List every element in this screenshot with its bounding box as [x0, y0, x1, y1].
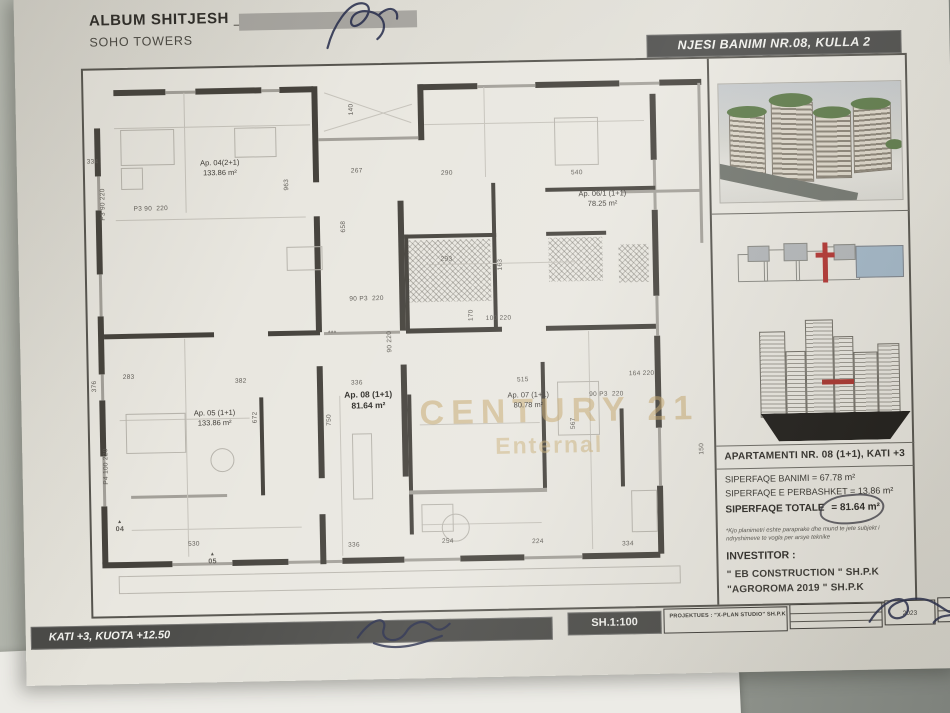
wall — [342, 557, 404, 564]
wall — [406, 327, 502, 334]
site-block — [783, 243, 807, 261]
wall — [319, 514, 326, 564]
disclaimer-note: *Kjo planimetri eshte paraprake dhe mund… — [726, 525, 906, 544]
apartment-label: Ap. 05 (1+1)133.86 m² — [171, 407, 257, 428]
year-box: 2023 — [884, 599, 935, 625]
window — [658, 428, 662, 486]
investor-company-1: " EB CONSTRUCTION " SH.P.K — [727, 567, 879, 581]
dimension-label: *** — [328, 330, 337, 337]
dimension-label: 100 220 — [486, 315, 512, 323]
wall — [546, 231, 606, 236]
wall — [98, 316, 105, 374]
wall — [649, 94, 656, 160]
photo-background: ALBUM SHITJESH _____ SOHO TOWERS NJESI B… — [0, 0, 950, 713]
guide-line — [183, 93, 186, 213]
site-plan-thumbnail — [737, 241, 903, 299]
wall — [535, 80, 619, 88]
site-blue-block — [855, 245, 904, 278]
site-highlight-marker — [822, 242, 828, 282]
floor-highlight-marker — [822, 379, 854, 385]
building-render-image — [717, 80, 903, 204]
dimension-labels: 334P3 90 220P3 90 2209631402676582905402… — [83, 59, 707, 71]
wall-light — [697, 83, 703, 243]
furniture — [631, 490, 658, 532]
wall-light — [409, 488, 547, 495]
elevation-podium — [761, 411, 912, 442]
dimension-label: 334 — [87, 158, 99, 165]
wall — [582, 552, 660, 559]
dimension-label: 334 — [622, 540, 634, 547]
area-common-line: SIPERFAQE E PERBASHKET = 13.86 m² — [725, 485, 893, 498]
apartment-label: Ap. 04(2+1)133.86 m² — [177, 157, 263, 178]
area-living-line: SIPERFAQE BANIMI = 67.78 m² — [725, 472, 855, 484]
signature-lines-box — [789, 602, 882, 629]
wall-light — [318, 136, 418, 141]
elevation-tower — [759, 331, 787, 417]
dimension-label: 750 — [326, 414, 333, 426]
guide-line — [116, 216, 306, 221]
dimension-label: 150 — [698, 443, 705, 455]
dimension-label: 336 — [348, 541, 360, 548]
wall — [546, 324, 656, 331]
balcony-line — [119, 565, 681, 594]
panel-divider — [716, 442, 914, 447]
furniture — [352, 433, 373, 499]
window — [165, 91, 195, 95]
window — [655, 296, 659, 336]
dimension-label: 515 — [517, 376, 529, 383]
wall — [311, 86, 319, 182]
wall — [419, 83, 477, 90]
wall — [659, 79, 701, 86]
window — [524, 555, 582, 559]
guide-line — [132, 527, 302, 531]
pen-signature-top — [319, 0, 412, 58]
window — [172, 562, 232, 566]
redacted-strip — [239, 10, 417, 30]
wall — [657, 486, 664, 554]
dimension-label: P4 100 220 — [102, 448, 110, 484]
dimension-label: 382 — [235, 378, 247, 385]
dimension-label: 05 — [208, 552, 217, 565]
investor-company-2: "AGROROMA 2019 " SH.P.K — [727, 582, 864, 596]
bathroom-hatch — [618, 244, 649, 283]
dimension-label: 283 — [123, 374, 135, 381]
wall — [652, 210, 660, 296]
dimension-label: 290 — [441, 170, 453, 177]
wall — [491, 183, 498, 331]
panel-divider — [712, 210, 910, 215]
dimension-label: P3 90 220 — [99, 188, 107, 220]
panel-divider — [717, 465, 915, 470]
dimension-label: 540 — [571, 169, 583, 176]
wall — [460, 554, 524, 561]
render-tower — [853, 102, 892, 173]
table — [210, 448, 234, 472]
wall — [404, 233, 496, 239]
watermark-sub: Enternal — [495, 431, 604, 460]
dimension-label: 293 — [441, 256, 453, 263]
wall — [268, 330, 320, 336]
drawing-frame: CENTURY 21 Enternal Ap. 04(2+1)133.86 m²… — [81, 53, 917, 619]
scale-bar: SH.1:100 — [567, 611, 661, 636]
furniture — [121, 168, 143, 190]
area-total-line: SIPERFAQE TOTALE = 81.64 m² — [725, 501, 884, 515]
dimension-label: 224 — [532, 538, 544, 545]
dimension-label: 140 — [348, 104, 355, 116]
dimension-label: 164 220 — [629, 370, 655, 378]
window — [404, 558, 460, 562]
window — [619, 82, 659, 86]
wall — [279, 86, 313, 93]
apartment-labels: Ap. 04(2+1)133.86 m²Ap. 06/1 (1+1)78.25 … — [83, 59, 707, 71]
render-tower — [729, 110, 766, 175]
wall — [317, 366, 325, 478]
wall — [232, 559, 288, 566]
elevation-tower — [805, 319, 835, 417]
investor-heading: INVESTITOR : — [726, 549, 795, 562]
apartment-label: Ap. 06/1 (1+1)78.25 m² — [559, 188, 645, 209]
elevation-tower — [877, 343, 900, 415]
wall — [259, 397, 265, 495]
wall — [104, 332, 214, 339]
site-block — [747, 246, 769, 262]
dimension-label: P3 90 220 — [134, 205, 169, 213]
revision-grid-box — [937, 597, 950, 622]
site-block — [833, 244, 855, 260]
elevation-tower — [785, 351, 806, 417]
window — [101, 374, 104, 400]
area-total-value: = 81.64 m² — [831, 501, 880, 513]
dimension-label: 530 — [188, 541, 200, 548]
wall — [102, 561, 172, 568]
render-tower — [771, 100, 815, 181]
dimension-label: 170 — [468, 309, 475, 321]
designer-label: PROJEKTUES : — [669, 613, 712, 620]
wall — [417, 84, 424, 140]
wall — [113, 89, 165, 96]
bathroom-hatch — [548, 237, 603, 282]
wall — [407, 394, 414, 534]
dimension-label: 658 — [340, 221, 347, 233]
dimension-label: 90 P3 220 — [349, 295, 384, 303]
window — [477, 84, 535, 88]
dimension-label: 336 — [351, 379, 363, 386]
designer-name: "X-PLAN STUDIO" SH.P.K — [714, 611, 786, 618]
render-greenery — [885, 139, 903, 149]
wall — [314, 216, 322, 332]
dimension-label: 267 — [351, 167, 363, 174]
dimension-label: 90 P3 220 — [589, 390, 624, 398]
site-highlight-marker — [816, 252, 835, 257]
floor-level-bar: KATI +3, KUOTA +12.50 — [31, 617, 553, 650]
apartment-label: Ap. 07 (1+1)80.78 m² — [485, 389, 571, 410]
wall-light — [131, 494, 227, 499]
dimension-label: 963 — [283, 179, 290, 191]
wall — [94, 128, 101, 176]
info-panel: APARTAMENTI NR. 08 (1+1), KATI +3 SIPERF… — [707, 55, 917, 605]
guide-line — [424, 120, 644, 125]
dimension-label: 567 — [570, 417, 577, 429]
furniture — [554, 117, 599, 166]
document-sheet: ALBUM SHITJESH _____ SOHO TOWERS NJESI B… — [13, 0, 950, 686]
elevation-tower — [853, 352, 878, 416]
dimension-label: 90 220 — [386, 331, 394, 353]
area-total-label: SIPERFAQE TOTALE — [725, 503, 824, 516]
dimension-label: 04 — [116, 520, 125, 533]
render-tower — [815, 112, 852, 179]
furniture — [120, 129, 175, 166]
elevation-tower — [833, 336, 855, 416]
dimension-label: 163 — [497, 259, 504, 271]
project-name: SOHO TOWERS — [89, 32, 279, 50]
designer-box: PROJEKTUES : "X-PLAN STUDIO" SH.P.K — [663, 606, 787, 633]
wall — [195, 87, 261, 94]
window — [261, 89, 279, 92]
bathroom-hatch — [408, 239, 491, 303]
furniture — [286, 246, 322, 271]
window — [99, 274, 103, 316]
dimension-label: 672 — [252, 411, 259, 423]
wall — [101, 506, 108, 564]
floor-plan: CENTURY 21 Enternal Ap. 04(2+1)133.86 m²… — [83, 59, 717, 617]
window — [288, 560, 342, 564]
furniture — [234, 127, 277, 158]
guide-line — [483, 87, 486, 177]
dimension-label: 376 — [91, 380, 98, 392]
guide-line — [339, 396, 343, 556]
apartment-label: Ap. 08 (1+1)81.64 m² — [325, 388, 411, 412]
dimension-label: 254 — [442, 538, 454, 545]
guide-line — [114, 124, 310, 129]
apartment-heading: APARTAMENTI NR. 08 (1+1), KATI +3 — [724, 448, 905, 462]
elevation-diagram — [759, 327, 911, 442]
